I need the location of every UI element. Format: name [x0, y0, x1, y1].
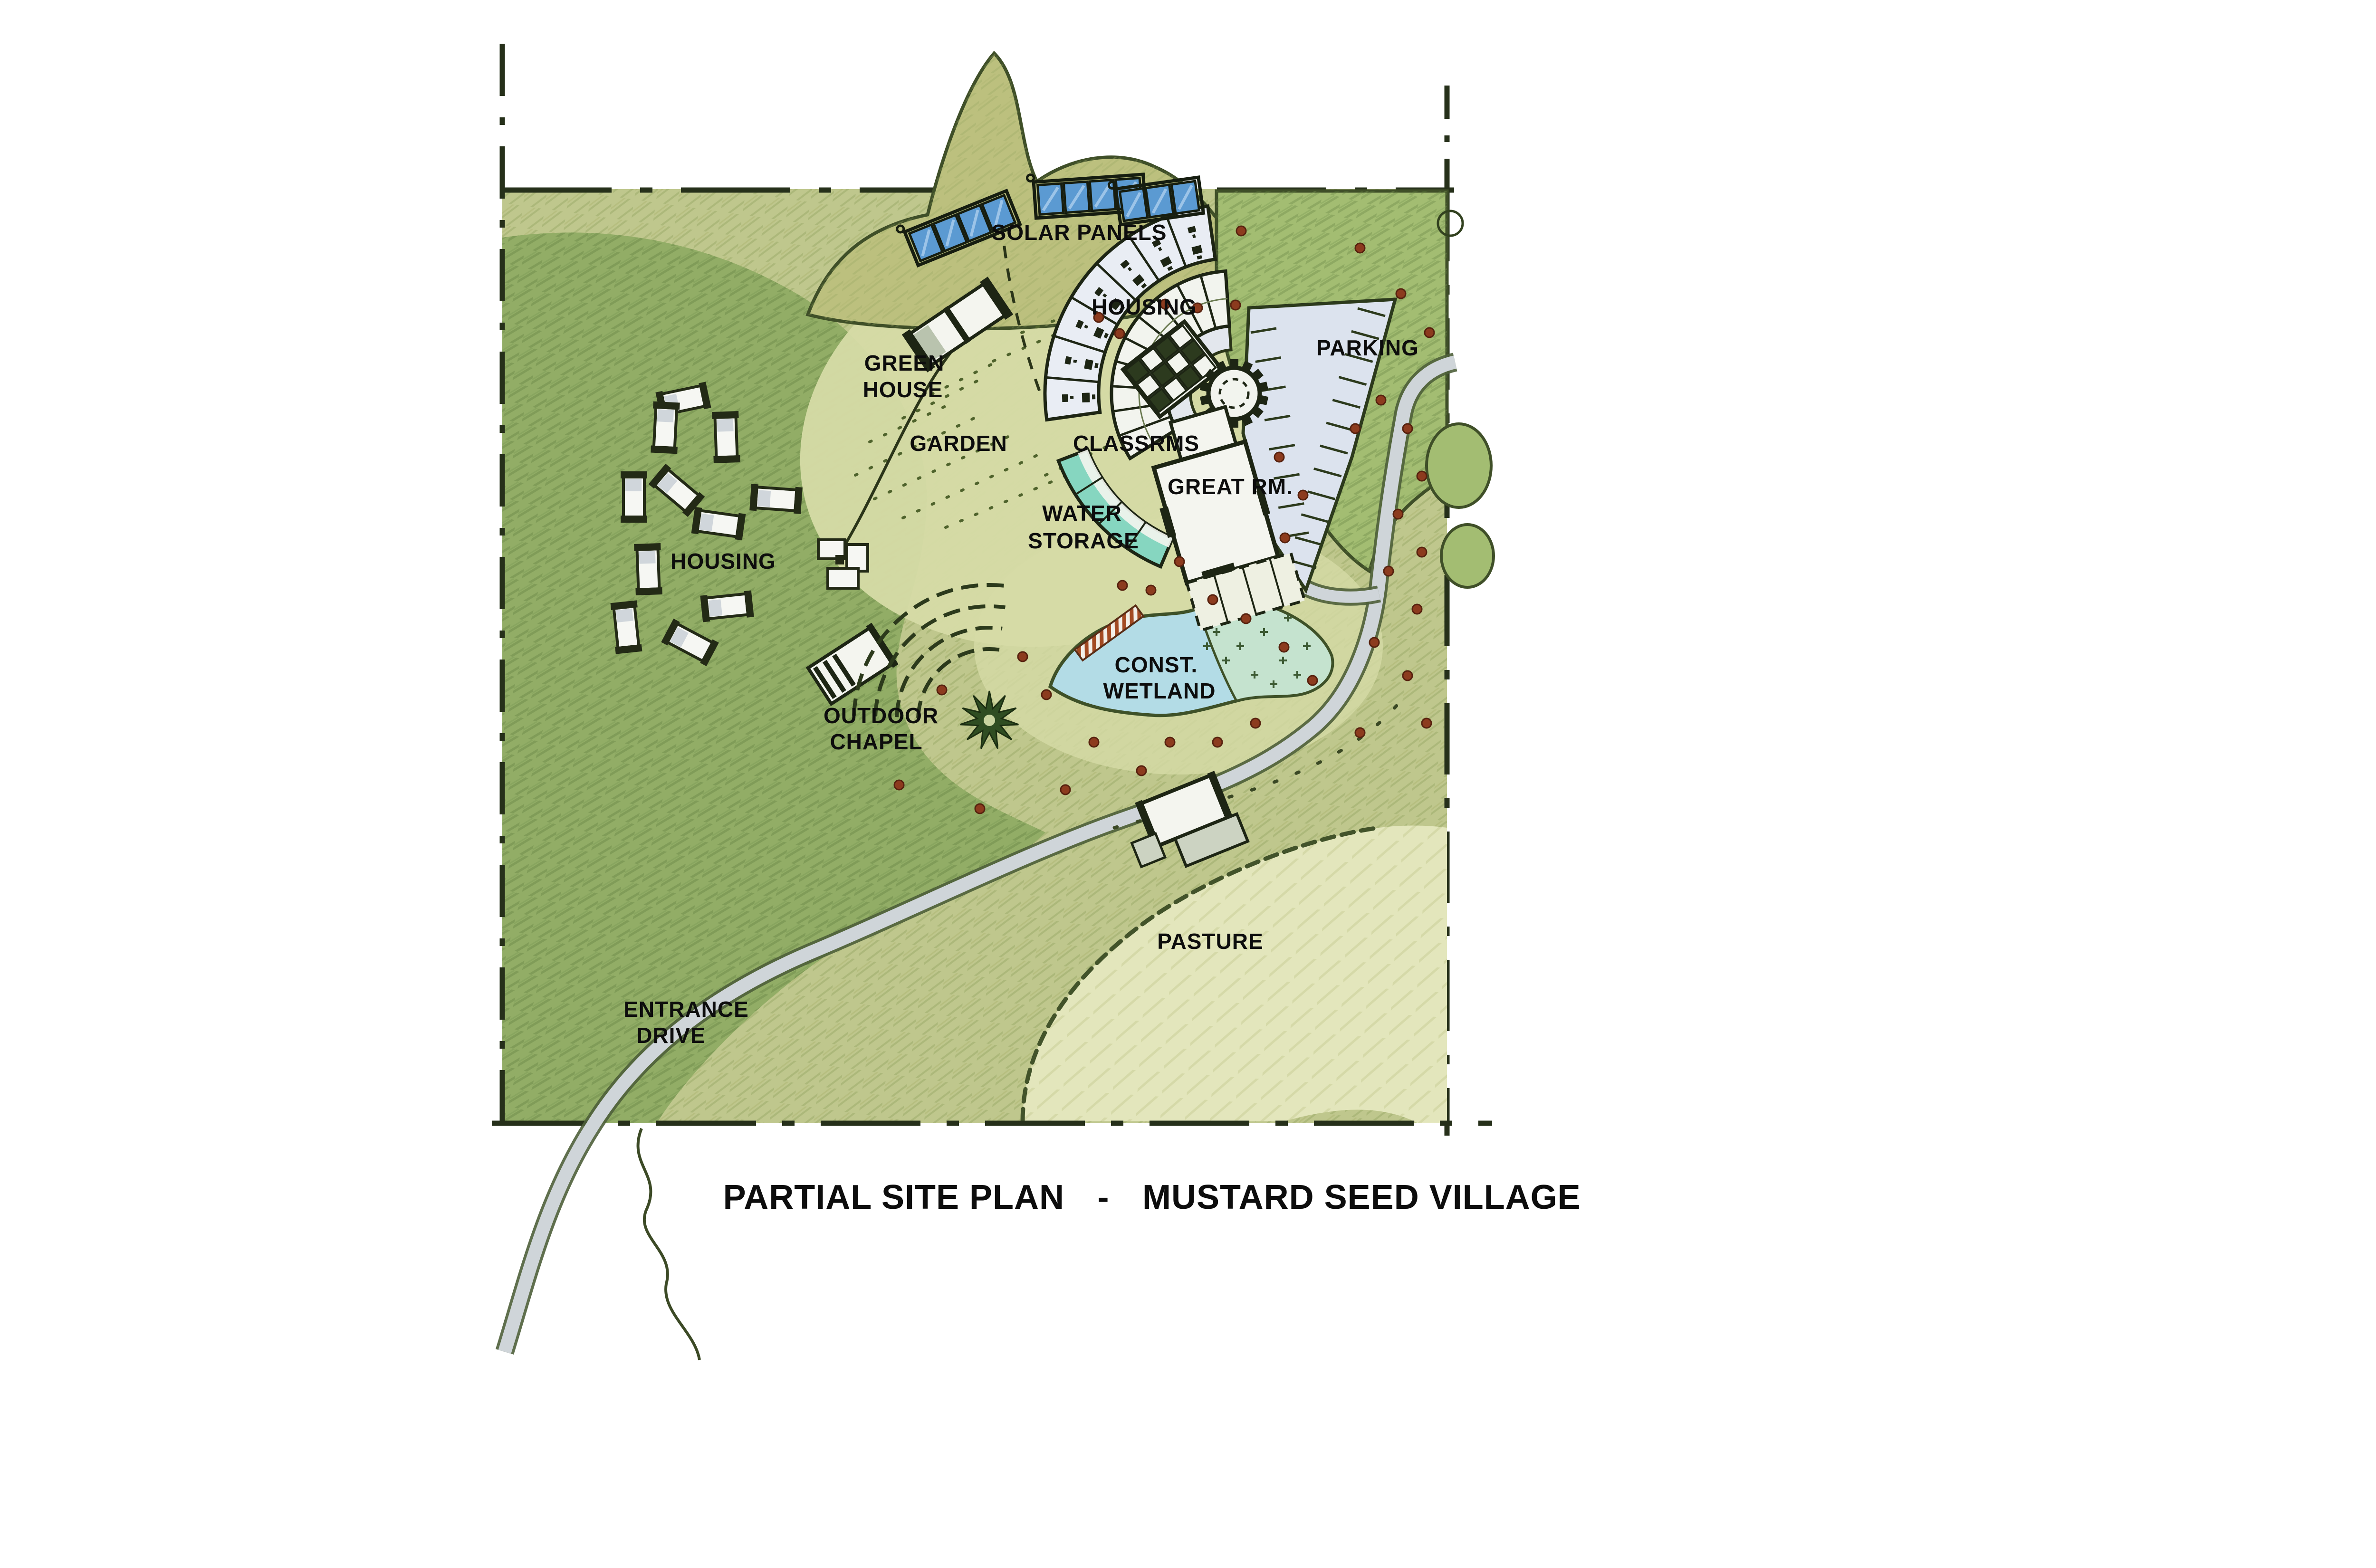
- label-housing-north: HOUSING: [1092, 295, 1197, 319]
- housing-unit: [749, 484, 803, 514]
- label-entrance-drive-2: DRIVE: [636, 1023, 706, 1048]
- label-housing-west: HOUSING: [671, 549, 776, 574]
- shrub-dot: [1165, 737, 1175, 747]
- shrub-dot: [1251, 718, 1260, 728]
- shrub-dot: [1403, 671, 1412, 680]
- housing-unit: [634, 543, 662, 595]
- shrub-dot: [1298, 490, 1308, 500]
- label-garden: GARDEN: [910, 431, 1007, 456]
- housing-unit-mark: [1070, 396, 1073, 399]
- shrub-dot: [1370, 638, 1379, 647]
- housing-unit: [651, 402, 680, 454]
- shrub-dot: [1236, 226, 1246, 236]
- shrub-dot: [894, 780, 904, 790]
- shrub-dot: [1089, 737, 1099, 747]
- housing-unit: [712, 411, 740, 463]
- label-outdoor-chapel-1: OUTDOOR: [824, 703, 939, 728]
- shrub-dot: [1376, 395, 1386, 405]
- shrub-dot: [975, 804, 985, 813]
- shrub-dot: [1231, 300, 1240, 310]
- shrub-dot: [1137, 766, 1146, 775]
- label-classrooms: CLASSRMS: [1073, 431, 1199, 456]
- focal-tree-center: [984, 715, 995, 726]
- shrub-dot: [1274, 452, 1284, 462]
- shrub-dot: [937, 685, 947, 695]
- shrub-dot: [1417, 547, 1427, 557]
- shrub-dot: [1118, 581, 1127, 590]
- crenellation: [1230, 359, 1238, 367]
- shrub-dot: [1422, 718, 1431, 728]
- label-water-storage-2: STORAGE: [1028, 528, 1139, 553]
- compound-court: [835, 555, 844, 564]
- label-great-room: GREAT RM.: [1168, 474, 1293, 499]
- housing-unit-mark: [1062, 394, 1068, 402]
- plan-title: PARTIAL SITE PLAN - MUSTARD SEED VILLAGE: [723, 1178, 1581, 1216]
- compound-building: [828, 568, 858, 588]
- site-plan-canvas: SOLAR PANELS HOUSING PARKING GREEN HOUSE…: [0, 0, 2376, 1568]
- shrub-dot: [1425, 328, 1434, 337]
- label-green-house-1: GREEN: [864, 351, 945, 375]
- shrub-dot: [1403, 424, 1412, 433]
- shrub-dot: [1308, 676, 1317, 685]
- title-separator: -: [1098, 1178, 1110, 1216]
- label-solar-panels: SOLAR PANELS: [992, 220, 1167, 245]
- shrub-dot: [1396, 289, 1406, 298]
- shrub-dot: [1393, 509, 1403, 519]
- label-water-storage-1: WATER: [1042, 501, 1122, 526]
- label-pasture: PASTURE: [1157, 929, 1263, 954]
- title-right: MUSTARD SEED VILLAGE: [1142, 1178, 1581, 1216]
- label-entrance-drive-1: ENTRANCE: [623, 997, 749, 1022]
- shrub-dot: [1018, 652, 1027, 661]
- label-green-house-2: HOUSE: [863, 377, 943, 402]
- site-plan-page: SOLAR PANELS HOUSING PARKING GREEN HOUSE…: [0, 0, 2376, 1568]
- shrub-dot: [1146, 585, 1156, 595]
- shrub-dot: [1279, 642, 1289, 652]
- shrub-dot: [1355, 728, 1365, 737]
- shrub-dot: [1208, 595, 1217, 604]
- shrub-dot: [1384, 566, 1393, 576]
- title-left: PARTIAL SITE PLAN: [723, 1178, 1064, 1216]
- label-outdoor-chapel-2: CHAPEL: [830, 729, 922, 754]
- housing-unit-mark: [1082, 392, 1090, 402]
- label-parking: PARKING: [1316, 335, 1419, 360]
- shrub-dot: [1412, 604, 1422, 614]
- tree-blob-east-2: [1441, 525, 1494, 587]
- shrub-dot: [1042, 690, 1051, 699]
- tree-blob-east-1: [1427, 424, 1491, 507]
- housing-unit-mark: [1092, 394, 1095, 399]
- shrub-dot: [1355, 243, 1365, 253]
- shrub-dot: [1115, 329, 1124, 338]
- shrub-dot: [1175, 557, 1184, 566]
- shrub-dot: [1213, 737, 1222, 747]
- shrub-dot: [1061, 785, 1070, 794]
- label-const-wetland-2: WETLAND: [1103, 679, 1216, 703]
- shrub-dot: [1351, 424, 1360, 433]
- housing-unit: [621, 471, 647, 523]
- shrub-dot: [1417, 471, 1427, 481]
- label-const-wetland-1: CONST.: [1115, 652, 1198, 677]
- shrub-dot: [1241, 614, 1251, 623]
- shrub-dot: [1280, 533, 1290, 543]
